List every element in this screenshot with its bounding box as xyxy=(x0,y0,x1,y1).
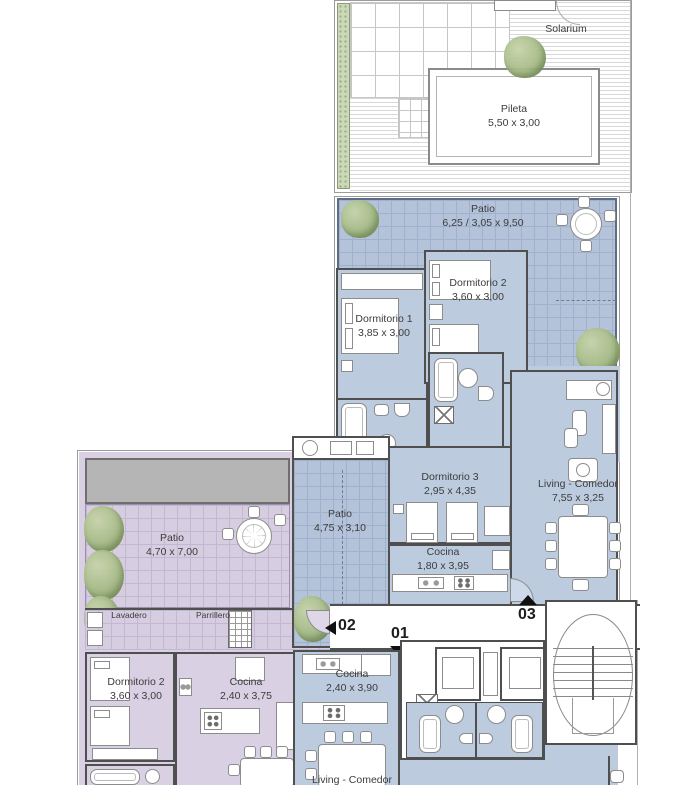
kitchen-sink-icon xyxy=(418,577,444,589)
bathtub-icon xyxy=(90,769,140,785)
elevator-cabin xyxy=(509,657,541,689)
dormitorio2-lower-label: Dormitorio 2 3,60 x 3,00 xyxy=(107,676,164,703)
pillow-icon xyxy=(94,661,110,669)
toilet-icon xyxy=(356,441,374,455)
tree-icon xyxy=(341,200,379,238)
nightstand-icon xyxy=(341,360,353,372)
chair-icon xyxy=(609,558,621,570)
laundry-sink-icon xyxy=(87,630,103,646)
elevator-door-column xyxy=(483,652,498,696)
chair-icon xyxy=(580,240,592,252)
chair-icon xyxy=(545,522,557,534)
nightstand-icon xyxy=(429,304,443,320)
toilet-icon xyxy=(394,403,410,417)
round-sink-icon xyxy=(302,440,318,456)
bathroom-divider-wall xyxy=(475,703,477,759)
unit-number-02: 02 xyxy=(338,617,356,635)
patio-table-icon xyxy=(236,518,272,554)
chair-icon xyxy=(556,214,568,226)
chair-icon xyxy=(276,746,288,758)
chair-icon xyxy=(244,746,256,758)
patio-upper-label: Patio 6,25 / 3,05 x 9,50 xyxy=(442,203,523,230)
chair-icon xyxy=(545,540,557,552)
chair-icon xyxy=(248,506,260,518)
property-line-right-upper xyxy=(630,0,631,607)
bed-icon xyxy=(406,502,438,543)
pillow-icon xyxy=(451,533,474,540)
toilet-icon xyxy=(479,733,493,744)
dormitorio1-label: Dormitorio 1 3,85 x 3,00 xyxy=(355,313,412,340)
pillow-icon xyxy=(345,303,353,324)
patio-dashed-line xyxy=(556,300,616,301)
garden-strip xyxy=(337,3,350,189)
patio-table-inner xyxy=(575,213,597,235)
round-sink-icon xyxy=(487,705,506,724)
solarium-label: Solarium xyxy=(545,23,586,37)
plant-icon xyxy=(596,382,610,396)
building-core xyxy=(400,640,545,760)
pillow-icon xyxy=(411,533,434,540)
round-sink-icon xyxy=(458,368,478,388)
chair-icon xyxy=(609,522,621,534)
armchair-cushion xyxy=(576,463,590,477)
parrillero-label: Parrillero xyxy=(196,610,230,621)
bed-icon xyxy=(90,706,130,746)
stove-icon xyxy=(454,576,474,590)
coffee-table-icon xyxy=(564,428,578,448)
chair-icon xyxy=(260,746,272,758)
chair-icon xyxy=(360,731,372,743)
fixture-icon xyxy=(610,770,624,783)
pillow-icon xyxy=(432,328,440,346)
chair-icon xyxy=(324,731,336,743)
pillow-icon xyxy=(345,328,353,349)
chair-icon xyxy=(228,764,240,776)
chair-icon xyxy=(274,514,286,526)
dining-table-icon xyxy=(558,516,608,578)
entrance-marker-03 xyxy=(519,595,537,605)
round-sink-icon xyxy=(445,705,464,724)
wardrobe-icon xyxy=(92,748,158,760)
elevator xyxy=(500,647,546,701)
kitchen-island xyxy=(302,702,388,724)
laundry-machine-icon xyxy=(87,612,103,628)
chair-icon xyxy=(578,196,590,208)
patio-left-label: Patio 4,70 x 7,00 xyxy=(146,532,198,559)
bed-icon xyxy=(446,502,478,543)
toilet-icon xyxy=(459,733,473,744)
grill-icon xyxy=(228,610,252,648)
bathtub-icon xyxy=(511,715,533,753)
stair-landing xyxy=(572,698,614,734)
kitchen-counter xyxy=(392,574,508,592)
sink-icon xyxy=(179,678,192,696)
patio-umbrella-icon xyxy=(242,524,266,548)
patio-table-icon xyxy=(570,208,602,240)
bathroom-lower-left xyxy=(85,764,175,785)
dormitorio2-lower-room xyxy=(85,652,175,762)
tree-icon xyxy=(84,506,124,552)
washer-icon xyxy=(434,406,454,424)
living-upper-label: Living - Comedor 7,55 x 3,25 xyxy=(538,478,618,505)
unit-number-03: 03 xyxy=(518,606,536,624)
tree-icon xyxy=(84,550,124,600)
chair-icon xyxy=(545,558,557,570)
side-unit-icon xyxy=(602,404,616,454)
patio-mid-label: Patio 4,75 x 3,10 xyxy=(314,508,366,535)
toilet-icon xyxy=(478,386,494,401)
bathtub-icon xyxy=(419,715,441,753)
entrance-marker-02 xyxy=(325,621,336,635)
bathroom-upper-middle xyxy=(428,352,504,460)
property-line-left xyxy=(77,450,78,785)
sink-icon xyxy=(330,441,352,455)
lavadero-label: Lavadero xyxy=(111,610,146,621)
pileta-label: Pileta 5,50 x 3,00 xyxy=(488,103,540,130)
core-bathrooms xyxy=(406,702,543,758)
stove-icon xyxy=(323,705,345,721)
wardrobe-icon xyxy=(341,273,423,290)
round-sink-icon xyxy=(145,769,160,784)
dormitorio3-label: Dormitorio 3 2,95 x 4,35 xyxy=(421,471,478,498)
fridge-icon xyxy=(492,550,510,570)
chair-icon xyxy=(609,540,621,552)
pillow-icon xyxy=(432,264,440,278)
gray-terrace xyxy=(85,458,290,504)
stove-icon xyxy=(204,712,222,730)
chair-icon xyxy=(342,731,354,743)
pillow-icon xyxy=(94,710,110,718)
elevator-cabin xyxy=(442,657,474,689)
staircase-box xyxy=(545,600,637,745)
cocina-lower-label: Cocina 2,40 x 3,90 xyxy=(326,668,378,695)
sink-icon xyxy=(374,404,389,416)
nightstand-icon xyxy=(393,504,404,514)
cocina-left-label: Cocina 2,40 x 3,75 xyxy=(220,676,272,703)
cocina-upper-label: Cocina 1,80 x 3,95 xyxy=(417,546,469,573)
floor-plan: Solarium Pileta 5,50 x 3,00 Patio 6,25 /… xyxy=(0,0,682,785)
shower-icon xyxy=(434,358,458,402)
cocina-left-room xyxy=(175,652,300,785)
wardrobe-icon xyxy=(484,506,510,536)
chair-icon xyxy=(222,528,234,540)
elevator xyxy=(435,647,481,701)
chair-icon xyxy=(305,750,317,762)
chair-icon xyxy=(604,210,616,222)
tree-icon xyxy=(504,36,546,78)
dormitorio2-upper-label: Dormitorio 2 3,60 x 3,00 xyxy=(449,277,506,304)
stair-center-rail xyxy=(592,646,594,700)
pillow-icon xyxy=(432,282,440,296)
chair-icon xyxy=(572,504,589,516)
roof-access-box xyxy=(494,0,556,11)
small-bath-above-patio xyxy=(292,436,390,460)
solarium-small-tiles xyxy=(398,98,432,138)
dining-table-icon xyxy=(240,758,294,785)
living-lower-label: Living - Comedor xyxy=(312,774,392,785)
chair-icon xyxy=(572,579,589,591)
